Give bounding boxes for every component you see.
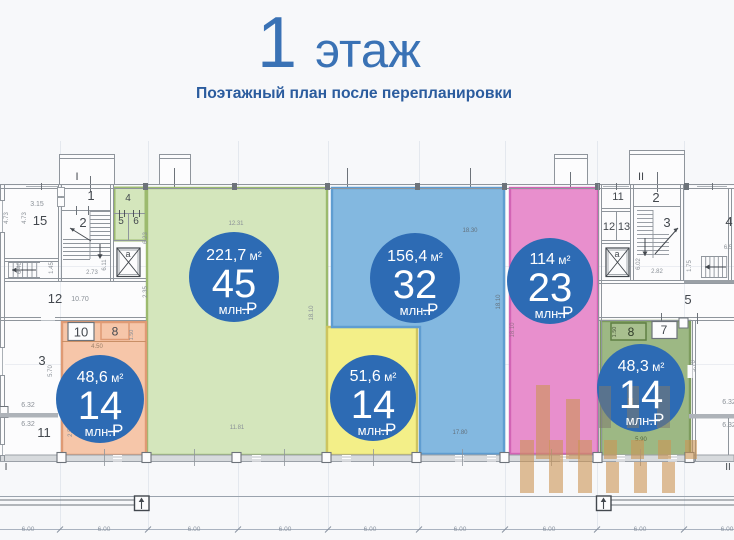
svg-text:1.50: 1.50 (129, 330, 135, 341)
svg-text:18.30: 18.30 (462, 228, 478, 234)
svg-text:6.00: 6.00 (543, 526, 556, 533)
svg-text:II: II (725, 462, 731, 473)
svg-text:3.15: 3.15 (30, 201, 44, 208)
svg-text:6.00: 6.00 (364, 526, 377, 533)
svg-text:4.73: 4.73 (22, 212, 28, 224)
svg-text:6.02: 6.02 (636, 258, 642, 270)
svg-text:6.00: 6.00 (98, 526, 111, 533)
svg-text:5.70: 5.70 (48, 365, 54, 377)
svg-text:2.82: 2.82 (651, 269, 663, 275)
svg-text:12: 12 (603, 221, 615, 233)
svg-text:7: 7 (661, 323, 668, 337)
svg-text:5: 5 (684, 292, 691, 307)
svg-text:1.50: 1.50 (612, 327, 618, 338)
svg-text:4.73: 4.73 (4, 212, 10, 224)
svg-text:млн.Р: млн.Р (400, 300, 439, 319)
svg-text:млн.Р: млн.Р (358, 420, 397, 439)
svg-text:I: I (75, 171, 78, 183)
svg-text:а: а (125, 249, 130, 259)
svg-text:13: 13 (618, 221, 630, 233)
svg-text:17.80: 17.80 (452, 430, 468, 436)
svg-text:млн.Р: млн.Р (219, 299, 258, 318)
svg-text:этаж: этаж (315, 24, 421, 78)
svg-text:I: I (5, 462, 8, 473)
svg-text:млн.Р: млн.Р (85, 421, 124, 440)
svg-text:4: 4 (125, 193, 131, 204)
svg-text:12: 12 (48, 291, 62, 306)
svg-text:2.35: 2.35 (143, 286, 149, 298)
svg-text:II: II (638, 171, 644, 183)
svg-text:6.00: 6.00 (188, 526, 201, 533)
svg-text:а: а (614, 249, 619, 259)
svg-text:4.50: 4.50 (91, 344, 103, 350)
svg-text:10: 10 (74, 325, 88, 340)
svg-text:6.32: 6.32 (21, 421, 35, 428)
svg-text:1: 1 (87, 188, 94, 203)
svg-text:млн.Р: млн.Р (626, 410, 665, 429)
svg-text:1.75: 1.75 (687, 260, 693, 272)
svg-text:18.10: 18.10 (309, 305, 315, 321)
svg-text:15: 15 (33, 213, 47, 228)
svg-text:4: 4 (725, 214, 732, 229)
svg-text:6.32: 6.32 (722, 422, 734, 429)
svg-text:6.23: 6.23 (143, 232, 149, 244)
svg-text:2.73: 2.73 (86, 270, 98, 276)
svg-text:3: 3 (38, 353, 45, 368)
svg-text:18.10: 18.10 (496, 294, 502, 310)
svg-text:8: 8 (112, 325, 119, 339)
svg-text:6.5: 6.5 (724, 245, 733, 251)
svg-text:6.00: 6.00 (279, 526, 292, 533)
svg-text:11: 11 (612, 191, 623, 203)
svg-text:6.00: 6.00 (721, 526, 734, 533)
svg-text:5: 5 (118, 216, 124, 227)
svg-text:11.81: 11.81 (230, 425, 245, 431)
svg-text:11: 11 (37, 425, 51, 440)
svg-text:2: 2 (652, 190, 659, 205)
svg-text:6.00: 6.00 (454, 526, 467, 533)
svg-text:6.40: 6.40 (17, 262, 23, 274)
svg-text:10.70: 10.70 (71, 296, 89, 303)
svg-text:12.31: 12.31 (228, 221, 244, 227)
svg-text:1.45: 1.45 (49, 262, 55, 274)
svg-text:6.32: 6.32 (21, 402, 35, 409)
svg-text:18.10: 18.10 (510, 322, 516, 338)
svg-text:8: 8 (628, 325, 635, 339)
svg-text:1: 1 (257, 3, 297, 83)
svg-text:млн.Р: млн.Р (535, 303, 574, 322)
svg-text:6.00: 6.00 (634, 526, 647, 533)
svg-text:2: 2 (79, 215, 86, 230)
svg-text:Поэтажный план после переплани: Поэтажный план после перепланировки (196, 85, 512, 102)
svg-text:3: 3 (663, 215, 670, 230)
svg-text:6.32: 6.32 (722, 399, 734, 406)
svg-text:6.00: 6.00 (22, 526, 35, 533)
svg-text:6.11: 6.11 (102, 259, 108, 271)
svg-text:6: 6 (133, 216, 139, 227)
